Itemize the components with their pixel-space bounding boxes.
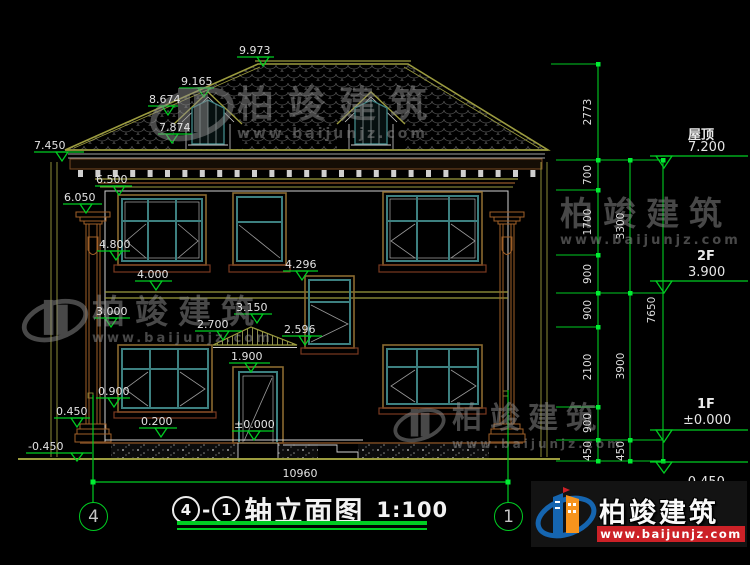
watermark-logo-icon xyxy=(392,400,447,448)
chain-dim: 1700 xyxy=(582,200,594,244)
window-2f-right xyxy=(379,192,486,272)
dim-label: 9.973 xyxy=(239,45,271,56)
stair-window xyxy=(301,276,358,354)
watermark-bottom: 柏竣建筑 www.baijunjz.com xyxy=(452,404,623,450)
dim-label: 4.296 xyxy=(285,259,317,270)
chain-dim: 450 xyxy=(615,429,627,473)
window-2f-middle xyxy=(229,193,290,272)
flag-label: 1F xyxy=(697,397,715,412)
watermark-brand: 柏竣建筑 xyxy=(452,404,623,434)
dim-label: -0.450 xyxy=(28,441,63,452)
chain-dim: 2773 xyxy=(582,90,594,134)
title-underline-thin xyxy=(177,528,427,530)
title-axis-to-bubble: 1 xyxy=(212,496,240,524)
dim-label: 2.700 xyxy=(197,319,229,330)
watermark-roof: 柏竣建筑 www.baijunjz.com xyxy=(237,86,441,141)
dim-label: 9.165 xyxy=(181,76,213,87)
dim-label: 0.200 xyxy=(141,416,173,427)
dim-label: 3.000 xyxy=(96,306,128,317)
chain-dim: 450 xyxy=(582,429,594,473)
axis-number: 4 xyxy=(88,507,99,527)
title-axis-to: 1 xyxy=(221,501,231,519)
title-axis-from: 4 xyxy=(181,501,191,519)
brand-logo-text: 柏竣建筑 xyxy=(599,491,719,530)
dim-label: 4.800 xyxy=(99,239,131,250)
watermark-url: www.baijunjz.com xyxy=(92,332,273,345)
watermark-url: www.baijunjz.com xyxy=(237,127,441,141)
brand-logo: 柏竣建筑 www.baijunjz.com xyxy=(531,481,747,547)
dim-label: 6.050 xyxy=(64,192,96,203)
watermark-brand: 柏竣建筑 xyxy=(237,86,441,123)
axis-bubble-4: 4 xyxy=(79,502,108,531)
dim-label: 1.900 xyxy=(231,351,263,362)
axis-bubble-1: 1 xyxy=(494,502,523,531)
watermark-url: www.baijunjz.com xyxy=(452,438,623,450)
title-dash: - xyxy=(202,498,210,522)
dim-label: 7.450 xyxy=(34,140,66,151)
flag-value: ±0.000 xyxy=(683,413,731,428)
dim-label: 3.150 xyxy=(236,302,268,313)
chain-dim: 7650 xyxy=(646,288,658,332)
dim-label: 0.450 xyxy=(56,406,88,417)
dim-label: 4.000 xyxy=(137,269,169,280)
flag-value: 3.900 xyxy=(688,265,725,280)
flag-value: 7.200 xyxy=(688,140,725,155)
chain-dim: 3300 xyxy=(615,204,627,248)
brand-logo-url: www.baijunjz.com xyxy=(597,526,745,542)
title-axis-from-bubble: 4 xyxy=(172,496,200,524)
dim-label: ±0.000 xyxy=(234,419,275,430)
chain-dim: 700 xyxy=(582,153,594,197)
elevation-drawing-canvas: 柏竣建筑 www.baijunjz.com 柏竣建筑 www.baijunjz.… xyxy=(0,0,750,565)
dim-label: 2.596 xyxy=(284,324,316,335)
dim-label: 6.500 xyxy=(96,174,128,185)
eave-cornice xyxy=(65,150,548,187)
title-underline-thick xyxy=(177,521,427,525)
dim-label: 7.874 xyxy=(159,122,191,133)
watermark-logo-icon xyxy=(148,80,236,144)
flag-label: 2F xyxy=(697,249,715,264)
window-1f-left xyxy=(114,345,216,418)
axis-number: 1 xyxy=(503,507,514,527)
title-scale: 1:100 xyxy=(376,498,448,522)
dim-label: 0.900 xyxy=(98,386,130,397)
chain-dim: 3900 xyxy=(615,344,627,388)
watermark-logo-icon xyxy=(20,290,90,348)
chain-dim: 900 xyxy=(582,288,594,332)
chain-dim: 2100 xyxy=(582,345,594,389)
dim-label: 8.674 xyxy=(149,94,181,105)
overall-width-dim: 10960 xyxy=(270,468,330,479)
brand-logo-icon xyxy=(533,483,599,545)
window-2f-left xyxy=(114,195,210,272)
